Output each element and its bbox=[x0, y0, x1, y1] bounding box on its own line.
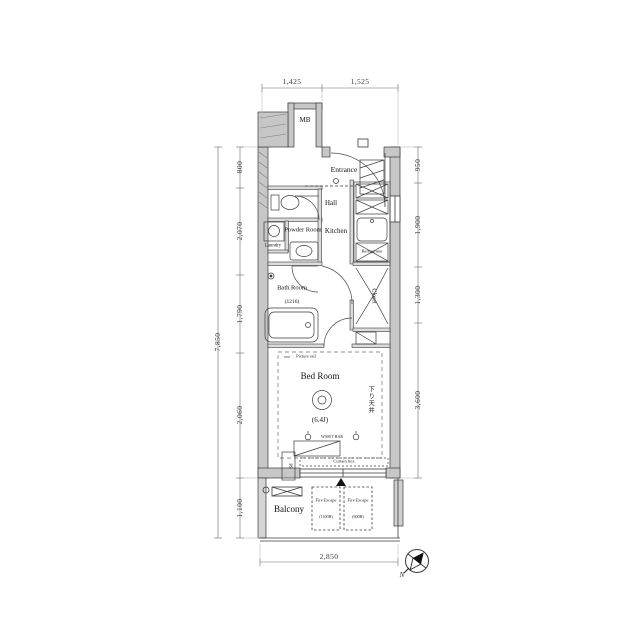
floor-plan-drawing bbox=[0, 0, 640, 640]
room-label-kitchen: Kitchen bbox=[325, 228, 347, 236]
dim-right-2: 1,900 bbox=[414, 216, 422, 235]
dim-top-2: 1,525 bbox=[351, 78, 370, 86]
dim-left-2: 2,070 bbox=[236, 222, 244, 241]
dim-right-1: 950 bbox=[414, 159, 422, 171]
room-label-laundry: Laundry bbox=[265, 243, 281, 248]
curtain-box-label: Curtain box bbox=[333, 460, 354, 465]
dim-bottom: 2,850 bbox=[320, 553, 339, 561]
room-label-refrigerator: Refrigerator bbox=[362, 250, 382, 255]
dim-left-1: 800 bbox=[236, 161, 244, 173]
fire-escape-sub-1: (1100H) bbox=[319, 515, 332, 519]
north-pointer-triangle bbox=[336, 478, 346, 486]
fixtures bbox=[264, 160, 390, 480]
compass-north-label: N bbox=[400, 572, 405, 580]
dim-left-3: 1,790 bbox=[236, 305, 244, 324]
room-label-bath-size: (1216) bbox=[285, 299, 300, 305]
compass-icon bbox=[402, 546, 433, 577]
dim-right-4: 3,600 bbox=[414, 391, 422, 410]
fire-escape-sub-2: (600H) bbox=[352, 515, 364, 519]
picture-rail-label: Picture rail bbox=[296, 355, 316, 360]
room-label-mb: MB bbox=[300, 117, 311, 125]
dim-left-4: 2,060 bbox=[236, 406, 244, 425]
dim-right-3: 1,300 bbox=[414, 286, 422, 305]
room-label-powder-room: Powder Room bbox=[284, 226, 322, 233]
dim-left-5: 1,100 bbox=[236, 499, 244, 518]
room-label-balcony: Balcony bbox=[274, 505, 304, 515]
dim-top-1: 1,425 bbox=[283, 78, 302, 86]
room-label-ps: PS bbox=[286, 463, 292, 469]
room-label-bath-room: Bath Room bbox=[275, 284, 309, 291]
floor-plan-page: 1,425 1,525 7,850 800 2,070 1,790 2,060 … bbox=[0, 0, 640, 640]
room-label-entrance: Entrance bbox=[331, 166, 358, 174]
dim-left-total: 7,850 bbox=[214, 333, 222, 352]
fire-escape-label-2: Fire Escape bbox=[346, 499, 370, 504]
lowered-ceiling-label: 下り天井 bbox=[367, 386, 374, 414]
fire-escape-label-1: Fire Escape bbox=[314, 499, 338, 504]
room-label-bedroom-size: (6.4J) bbox=[312, 417, 328, 425]
hanger-bar-label: W900 T.BAR bbox=[321, 435, 343, 439]
room-label-bed-room: Bed Room bbox=[301, 372, 340, 382]
room-label-closet: Closet bbox=[370, 288, 377, 303]
room-label-hall: Hall bbox=[325, 200, 337, 208]
